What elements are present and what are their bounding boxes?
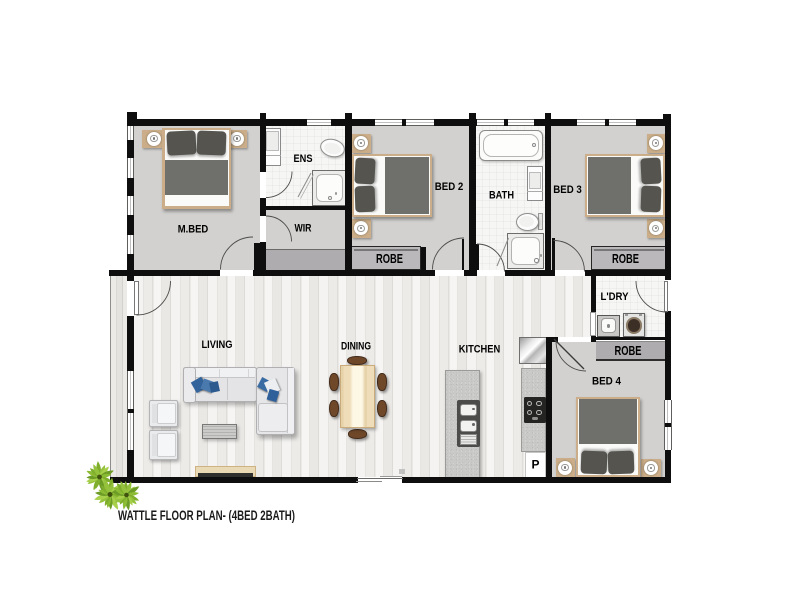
svg-text:BED 4: BED 4 [592,376,622,388]
svg-text:KITCHEN: KITCHEN [459,344,501,356]
svg-text:LIVING: LIVING [202,339,233,351]
svg-text:ENS: ENS [294,153,313,165]
svg-text:WIR: WIR [295,223,312,235]
svg-text:ROBE: ROBE [612,251,639,266]
svg-text:BED 3: BED 3 [553,184,582,196]
svg-text:ROBE: ROBE [615,343,642,358]
svg-text:M.BED: M.BED [178,224,209,236]
svg-text:DINING: DINING [341,341,371,353]
svg-text:BED 2: BED 2 [435,181,464,193]
svg-text:P: P [532,458,540,472]
svg-text:BATH: BATH [489,190,514,202]
svg-text:L'DRY: L'DRY [601,291,629,303]
svg-text:ROBE: ROBE [376,251,403,266]
svg-text:WATTLE FLOOR PLAN- (4BED 2BATH: WATTLE FLOOR PLAN- (4BED 2BATH) [118,508,295,523]
